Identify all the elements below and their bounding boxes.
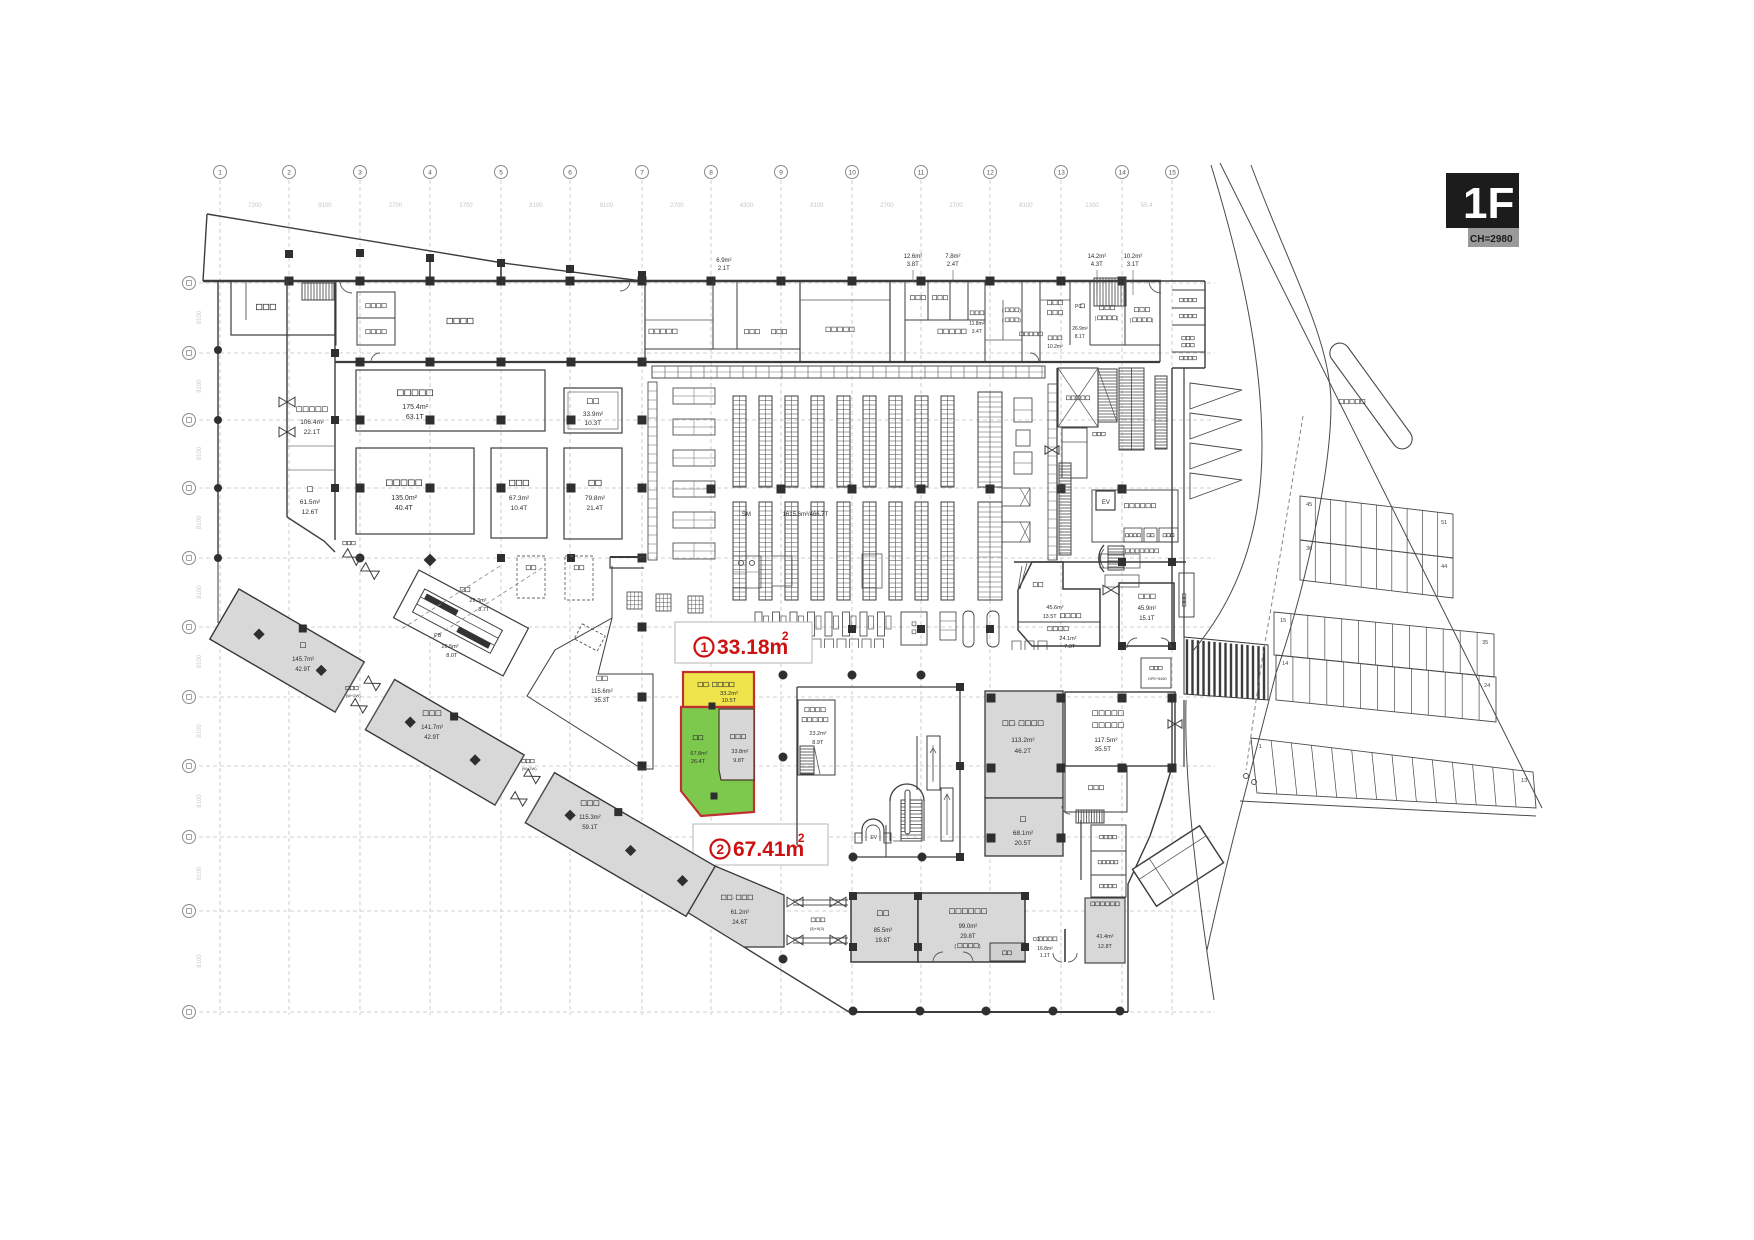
svg-text:67.3m²: 67.3m² [509, 495, 530, 502]
svg-text:35.3T: 35.3T [594, 698, 610, 704]
svg-text:99.0m²: 99.0m² [959, 924, 978, 930]
svg-text:EV: EV [870, 835, 877, 841]
svg-text:61.2m²: 61.2m² [731, 910, 750, 916]
svg-text:33.2m²: 33.2m² [720, 691, 738, 697]
svg-text:2: 2 [798, 831, 805, 845]
svg-text:29.3m²: 29.3m² [469, 598, 486, 604]
svg-text:8100: 8100 [318, 203, 332, 209]
svg-text:8100: 8100 [810, 203, 824, 209]
svg-text:33.18m: 33.18m [717, 636, 788, 659]
svg-text:8100: 8100 [197, 310, 203, 324]
svg-text:3: 3 [358, 170, 362, 177]
svg-text:24.6T: 24.6T [732, 920, 748, 926]
svg-text:10.5T: 10.5T [722, 698, 737, 704]
svg-text:40.4T: 40.4T [395, 505, 414, 512]
svg-text:42.9T: 42.9T [424, 735, 440, 741]
svg-text:7200: 7200 [248, 203, 262, 209]
svg-text:12.6T: 12.6T [302, 509, 319, 516]
svg-text:10.2m²: 10.2m² [1047, 344, 1063, 350]
svg-text:13: 13 [1058, 170, 1066, 177]
svg-text:11: 11 [918, 170, 925, 177]
svg-text:2.1T: 2.1T [718, 266, 730, 272]
svg-text:7.8m²: 7.8m² [945, 254, 960, 260]
svg-text:35: 35 [1482, 640, 1488, 646]
svg-text:26.4T: 26.4T [691, 759, 706, 765]
svg-text:PC: PC [1075, 304, 1082, 310]
svg-text:22.1T: 22.1T [304, 429, 321, 436]
svg-text:): ) [979, 944, 981, 950]
svg-text:8: 8 [709, 170, 713, 177]
svg-text:6.9m²: 6.9m² [716, 258, 731, 264]
svg-text:8100: 8100 [197, 379, 203, 393]
svg-text:5: 5 [499, 170, 503, 177]
svg-text:8100: 8100 [1019, 203, 1033, 209]
svg-text:8100: 8100 [197, 515, 203, 529]
svg-text:51: 51 [1441, 520, 1447, 526]
svg-text:45.9m²: 45.9m² [1138, 606, 1157, 612]
svg-text:23.2m²: 23.2m² [809, 731, 826, 737]
svg-text:3.1T: 3.1T [1127, 262, 1139, 268]
svg-text:2: 2 [782, 629, 789, 643]
svg-text:8100: 8100 [197, 794, 203, 808]
svg-text:19.8T: 19.8T [875, 938, 891, 944]
svg-text:·: · [733, 896, 735, 902]
svg-text:1.1T: 1.1T [1040, 953, 1050, 959]
svg-text:115.6m²: 115.6m² [591, 689, 613, 695]
svg-text:8.9T: 8.9T [812, 740, 824, 746]
svg-text:45: 45 [1306, 502, 1312, 508]
svg-text:8.1T: 8.1T [1075, 334, 1085, 340]
svg-text:(W+2W): (W+2W) [346, 693, 361, 698]
svg-text:2700: 2700 [459, 203, 473, 209]
svg-text:26.5m²: 26.5m² [441, 644, 458, 650]
svg-text:EV: EV [1102, 500, 1110, 506]
svg-text:26.9m²: 26.9m² [1072, 326, 1088, 332]
svg-text:85.5m²: 85.5m² [874, 928, 893, 934]
svg-text:8100: 8100 [197, 866, 203, 880]
svg-text:·: · [1015, 721, 1017, 728]
svg-text:SM: SM [742, 512, 751, 518]
svg-text:4: 4 [428, 170, 432, 177]
svg-text:2700: 2700 [880, 203, 894, 209]
svg-text:2: 2 [287, 170, 291, 177]
svg-text:21.4T: 21.4T [587, 505, 604, 512]
svg-text:11.8m²: 11.8m² [969, 321, 985, 327]
svg-text:42.9T: 42.9T [295, 667, 311, 673]
svg-text:15.1T: 15.1T [1139, 616, 1155, 622]
svg-text:2700: 2700 [389, 203, 403, 209]
svg-text:9: 9 [779, 170, 783, 177]
svg-text:6: 6 [568, 170, 572, 177]
svg-text:68.1m²: 68.1m² [1013, 830, 1034, 837]
svg-text:24.1m²: 24.1m² [1059, 636, 1076, 642]
svg-text:12: 12 [987, 170, 995, 177]
svg-text:55.4: 55.4 [1141, 203, 1153, 209]
svg-text:CH=2980: CH=2980 [1470, 234, 1513, 245]
svg-text:2.4T: 2.4T [947, 262, 959, 268]
svg-text:12.6m²: 12.6m² [904, 254, 923, 260]
svg-text:14.2m²: 14.2m² [1088, 254, 1107, 260]
svg-text:29.8T: 29.8T [960, 934, 976, 940]
svg-text:1: 1 [218, 170, 222, 177]
svg-text:1: 1 [700, 639, 708, 655]
svg-text:DPE+5450: DPE+5450 [1148, 677, 1166, 681]
svg-text:8100: 8100 [197, 585, 203, 599]
svg-text:10.3T: 10.3T [585, 420, 602, 427]
svg-text:8.0T: 8.0T [446, 653, 458, 659]
svg-text:13: 13 [1521, 778, 1527, 784]
svg-text:63.1T: 63.1T [406, 414, 425, 421]
svg-text:2700: 2700 [949, 203, 963, 209]
svg-text:117.5m²: 117.5m² [1094, 737, 1118, 744]
svg-text:9.8T: 9.8T [733, 758, 745, 764]
svg-text:3.8T: 3.8T [907, 262, 919, 268]
svg-text:4.3T: 4.3T [1091, 262, 1103, 268]
svg-text:13.5T: 13.5T [1043, 614, 1058, 620]
svg-text:115.3m²: 115.3m² [579, 815, 601, 821]
svg-text:24: 24 [1484, 683, 1490, 689]
svg-text:7.3T: 7.3T [1064, 644, 1076, 650]
svg-text:8100: 8100 [197, 446, 203, 460]
svg-text:15: 15 [1169, 170, 1177, 177]
svg-text:8100: 8100 [197, 724, 203, 738]
svg-text:59.1T: 59.1T [582, 825, 598, 831]
svg-text:20.5T: 20.5T [1015, 840, 1032, 847]
svg-text:113.2m²: 113.2m² [1011, 737, 1035, 744]
svg-text:12.8T: 12.8T [1098, 944, 1113, 950]
svg-text:15: 15 [1280, 618, 1286, 624]
svg-text:1F: 1F [1463, 179, 1514, 228]
svg-text:2700: 2700 [670, 203, 684, 209]
svg-text:44: 44 [1441, 564, 1447, 570]
svg-text:106.4m²: 106.4m² [300, 419, 325, 426]
svg-text:CD: CD [1033, 937, 1041, 943]
svg-text:135.0m²: 135.0m² [391, 495, 417, 502]
svg-text:14: 14 [1282, 661, 1288, 667]
svg-text:1615.6m²/466.7T: 1615.6m²/466.7T [783, 512, 829, 518]
svg-text:16.8m²: 16.8m² [1037, 946, 1053, 952]
svg-text:175.4m²: 175.4m² [402, 404, 428, 411]
svg-text:3.4T: 3.4T [972, 329, 982, 335]
svg-text:8100: 8100 [197, 954, 203, 968]
svg-text:(: ( [954, 944, 956, 950]
svg-text:67.41m: 67.41m [733, 838, 804, 861]
svg-text:33.9m²: 33.9m² [583, 411, 604, 418]
svg-text:(3)+5(3): (3)+5(3) [810, 926, 825, 931]
svg-text:45.6m²: 45.6m² [1046, 605, 1063, 611]
svg-text:8100: 8100 [197, 654, 203, 668]
svg-text:46.2T: 46.2T [1015, 748, 1032, 755]
svg-text:141.7m²: 141.7m² [421, 725, 443, 731]
svg-text:79.8m²: 79.8m² [585, 495, 606, 502]
svg-text:·: · [709, 683, 711, 689]
svg-text:10.2m²: 10.2m² [1124, 254, 1143, 260]
svg-text:(W+2W): (W+2W) [522, 766, 537, 771]
svg-text:145.7m²: 145.7m² [292, 657, 314, 663]
svg-text:10.4T: 10.4T [511, 505, 528, 512]
svg-text:PB: PB [434, 633, 442, 639]
svg-text:61.5m²: 61.5m² [300, 499, 321, 506]
svg-text:35.5T: 35.5T [1095, 746, 1112, 753]
svg-text:1300: 1300 [1085, 203, 1099, 209]
svg-text:7: 7 [640, 170, 644, 177]
svg-text:14: 14 [1119, 170, 1127, 177]
svg-text:36: 36 [1306, 546, 1312, 552]
svg-text:33.8m²: 33.8m² [731, 749, 748, 755]
svg-text:41.4m²: 41.4m² [1096, 934, 1113, 940]
svg-text:2: 2 [716, 841, 724, 857]
svg-text:67.8m²: 67.8m² [690, 751, 707, 757]
svg-text:10: 10 [849, 170, 857, 177]
svg-text:8100: 8100 [600, 203, 614, 209]
svg-text:1: 1 [1259, 744, 1262, 750]
svg-text:8100: 8100 [529, 203, 543, 209]
svg-text:4300: 4300 [740, 203, 754, 209]
